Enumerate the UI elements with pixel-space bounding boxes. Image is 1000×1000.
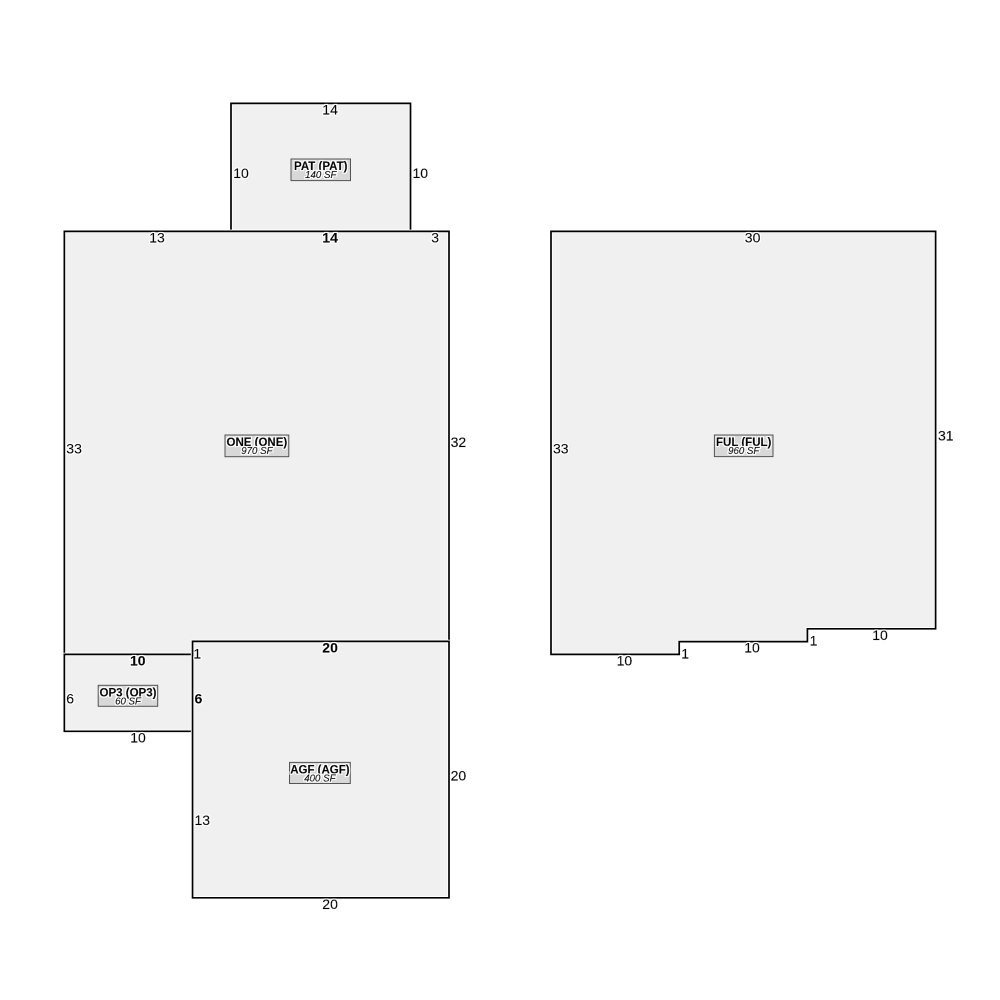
- svg-text:10: 10: [130, 729, 146, 745]
- svg-text:400 SF: 400 SF: [304, 773, 336, 784]
- svg-text:31: 31: [938, 428, 954, 444]
- svg-text:20: 20: [322, 639, 338, 655]
- svg-text:1: 1: [681, 645, 689, 661]
- svg-text:32: 32: [451, 434, 467, 450]
- svg-text:14: 14: [322, 229, 338, 245]
- svg-text:960 SF: 960 SF: [728, 446, 760, 457]
- svg-text:20: 20: [451, 768, 467, 784]
- svg-text:30: 30: [745, 229, 761, 245]
- svg-text:10: 10: [413, 165, 429, 181]
- svg-text:13: 13: [195, 812, 211, 828]
- svg-text:10: 10: [233, 165, 249, 181]
- svg-text:6: 6: [195, 690, 203, 706]
- svg-text:10: 10: [130, 652, 146, 668]
- svg-text:20: 20: [322, 896, 338, 912]
- svg-text:14: 14: [322, 101, 338, 117]
- svg-text:60 SF: 60 SF: [115, 696, 142, 707]
- svg-text:10: 10: [744, 640, 760, 656]
- svg-text:13: 13: [149, 229, 165, 245]
- svg-text:33: 33: [66, 441, 82, 457]
- svg-text:10: 10: [617, 652, 633, 668]
- svg-text:140 SF: 140 SF: [305, 170, 337, 181]
- svg-text:1: 1: [193, 645, 201, 661]
- svg-text:970 SF: 970 SF: [241, 446, 273, 457]
- svg-text:33: 33: [553, 441, 569, 457]
- svg-text:6: 6: [66, 690, 74, 706]
- svg-text:1: 1: [810, 633, 818, 649]
- svg-text:3: 3: [431, 229, 439, 245]
- svg-text:10: 10: [872, 627, 888, 643]
